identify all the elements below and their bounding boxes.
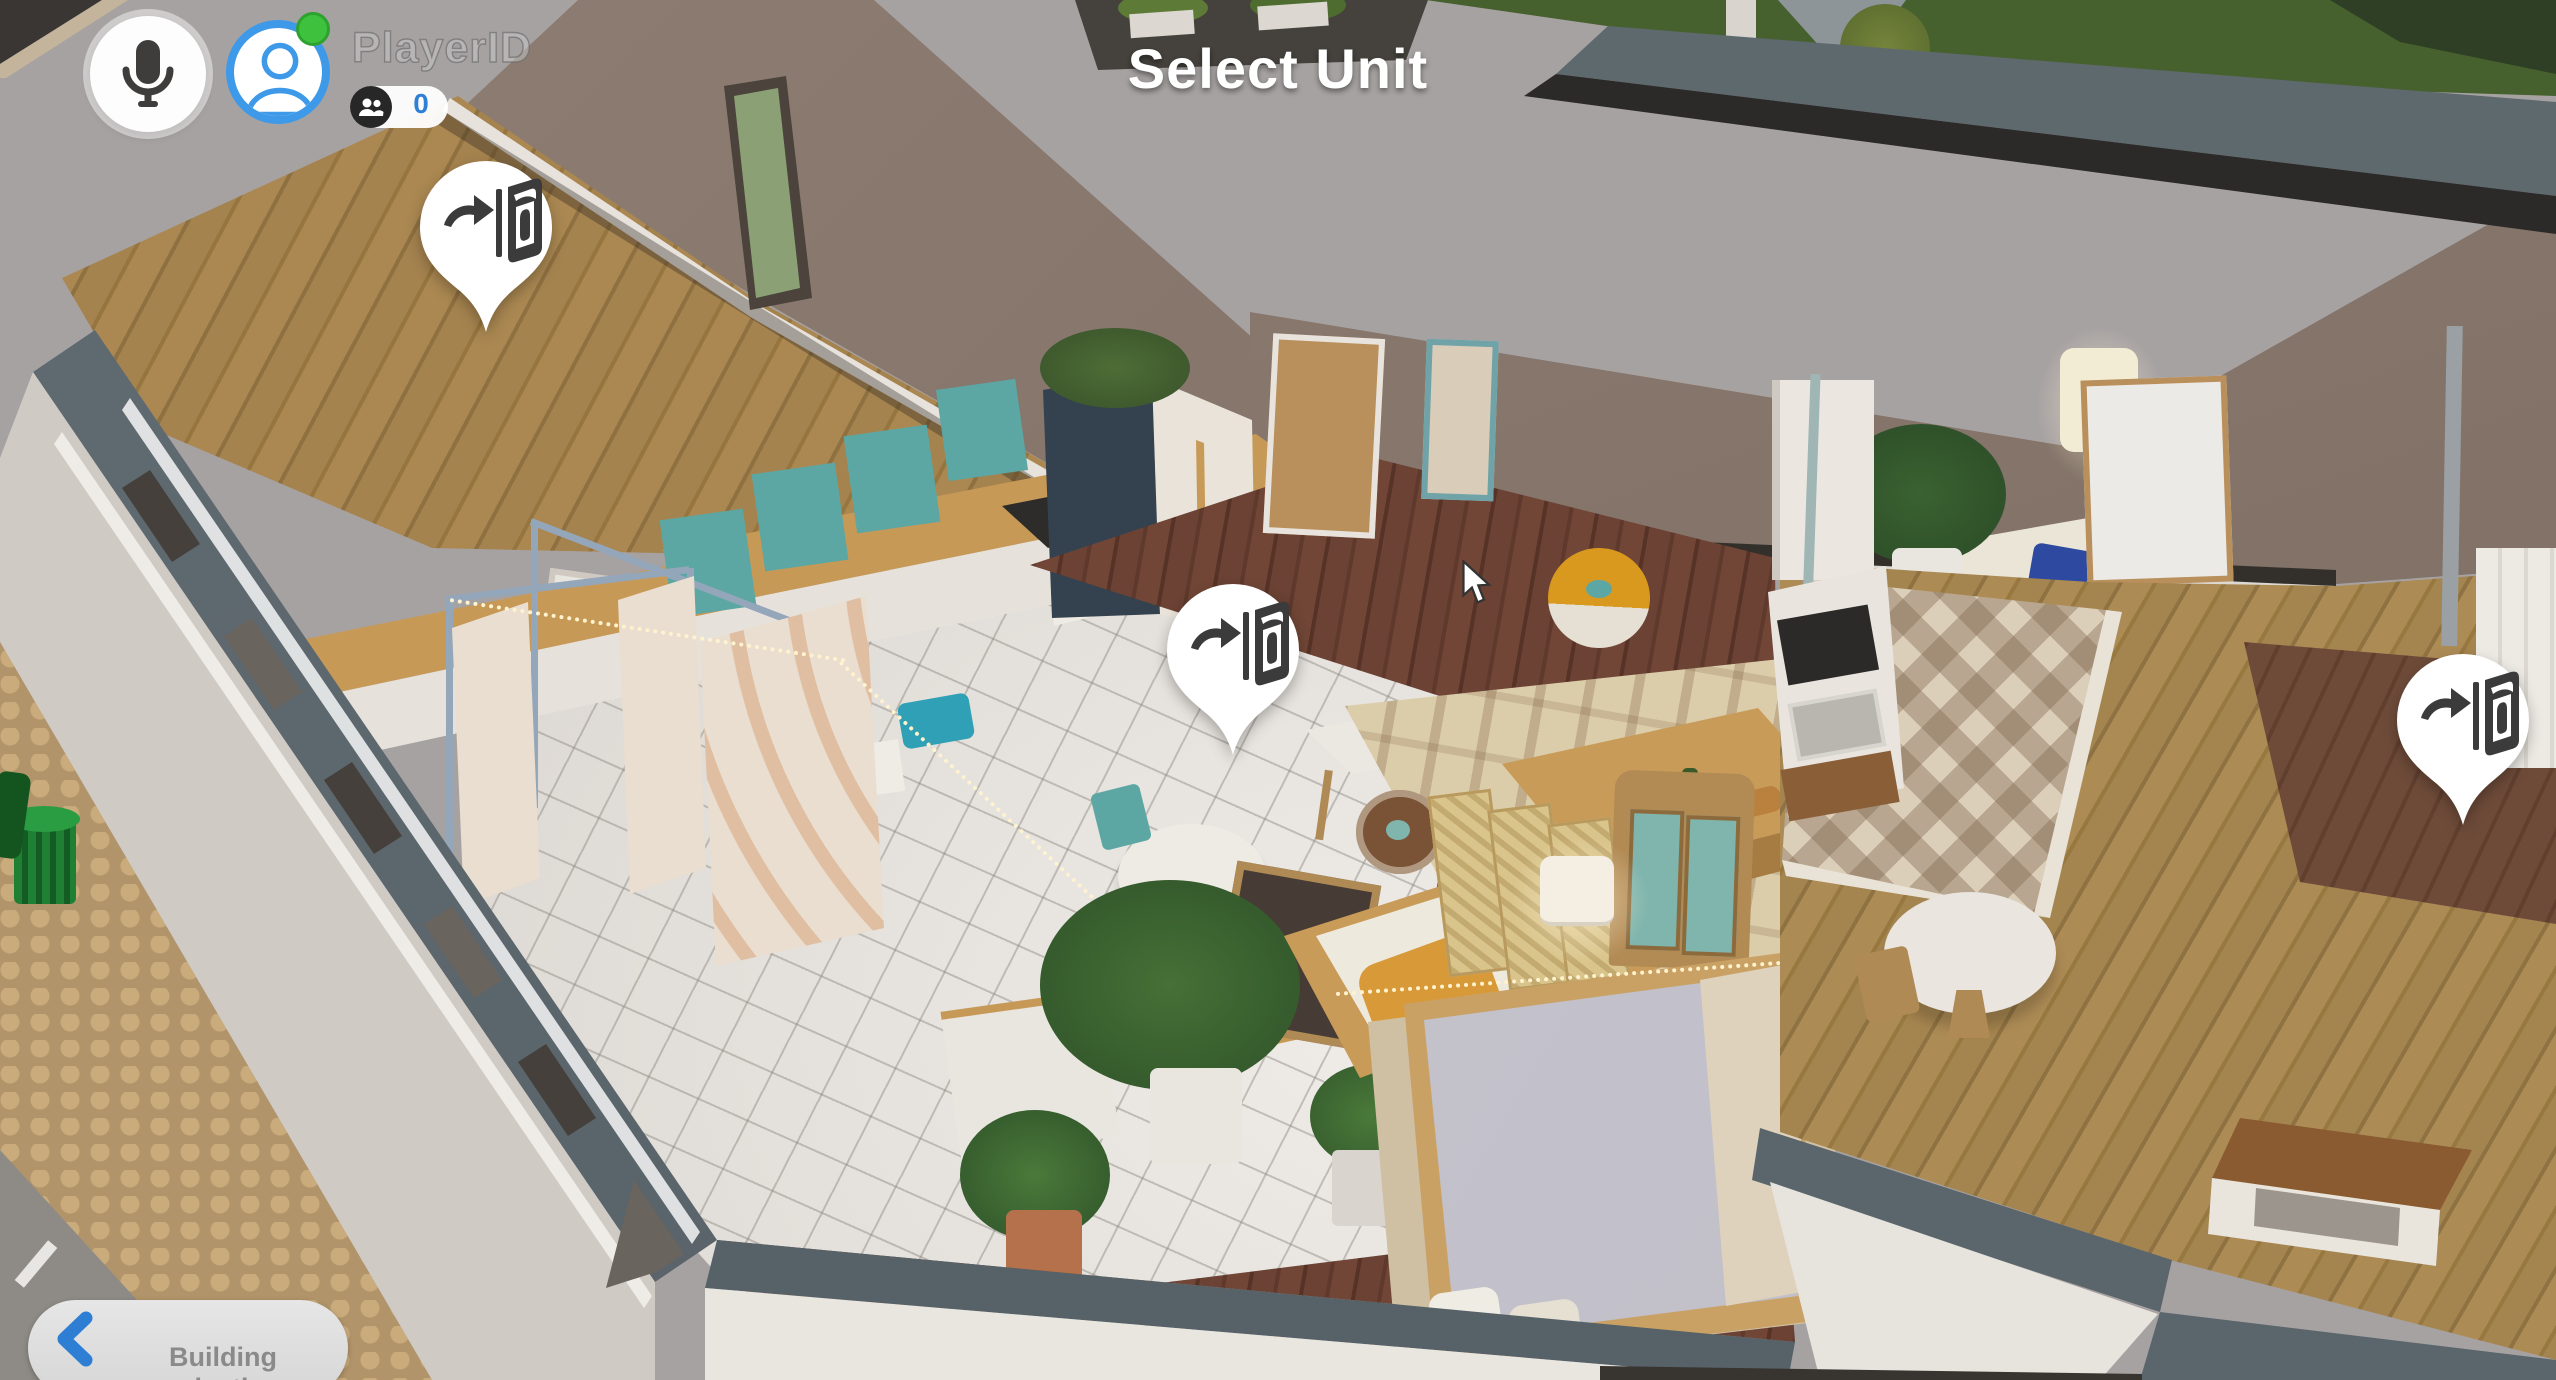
spectator-icon-circle xyxy=(350,86,392,128)
pouf-button xyxy=(1586,580,1612,598)
enter-door-icon xyxy=(2393,650,2533,830)
pendant-lamp xyxy=(1540,856,1614,926)
pouf-leather-dot xyxy=(1386,820,1410,840)
framed-poster xyxy=(1421,339,1499,501)
teal-panel-3 xyxy=(844,425,941,534)
wood-door xyxy=(1263,333,1385,539)
enter-door-icon xyxy=(416,157,556,337)
mic-button[interactable] xyxy=(90,16,206,132)
teal-panel-4 xyxy=(936,379,1028,481)
fridge-white xyxy=(1772,380,1874,580)
building-selection-label: Building selection xyxy=(108,1342,338,1380)
planter-box-2 xyxy=(1257,2,1329,31)
canopy-pole-1 xyxy=(446,598,453,874)
white-door xyxy=(2080,376,2233,587)
spectator-count: 0 xyxy=(398,88,444,120)
armoire-glass-2 xyxy=(1682,815,1741,957)
fridge-plant xyxy=(1040,328,1190,408)
planter-box-1 xyxy=(1129,10,1195,38)
enter-door-icon xyxy=(1163,580,1303,760)
chevron-left-icon xyxy=(50,1310,102,1368)
monstera-big xyxy=(1040,880,1300,1090)
online-status-dot xyxy=(296,12,330,46)
microphone-icon xyxy=(120,38,176,110)
teal-panel-2 xyxy=(752,463,849,572)
player-name-label: PlayerID xyxy=(352,24,532,73)
unit-pin-1[interactable] xyxy=(416,157,556,337)
unit-pin-2[interactable] xyxy=(1163,580,1303,760)
plant-pot-white xyxy=(1150,1068,1242,1164)
people-icon xyxy=(358,97,384,117)
game-screen: Select Unit PlayerID 0 Building selectio xyxy=(0,0,2556,1380)
unit-pin-3[interactable] xyxy=(2393,650,2533,830)
